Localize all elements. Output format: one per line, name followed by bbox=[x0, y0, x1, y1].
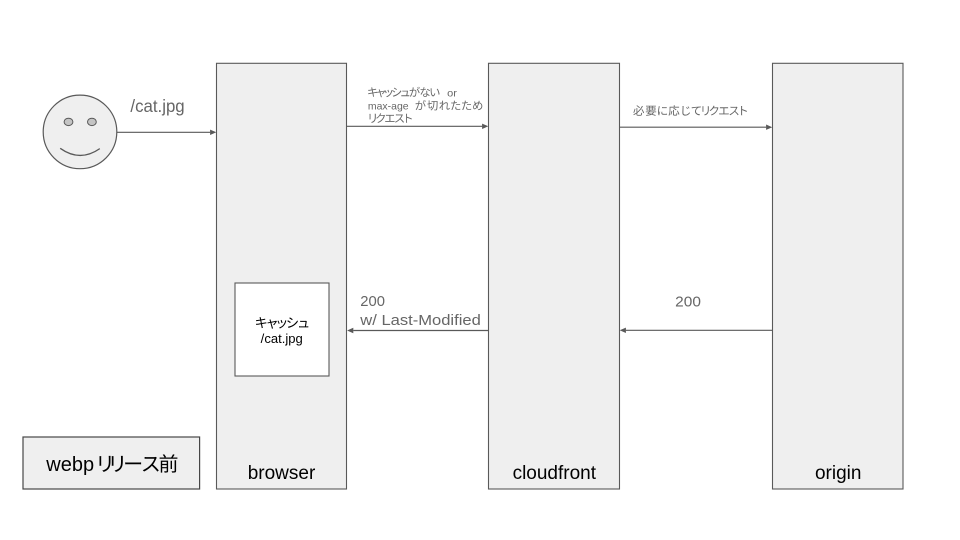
svg-text:200: 200 bbox=[675, 294, 701, 311]
svg-text:origin: origin bbox=[815, 463, 861, 484]
svg-text:webp: webp bbox=[45, 454, 94, 476]
svg-text:max-age: max-age bbox=[368, 101, 409, 113]
svg-text:w/ Last-Modified: w/ Last-Modified bbox=[359, 312, 481, 329]
svg-text:browser: browser bbox=[248, 463, 316, 484]
svg-text:or: or bbox=[447, 87, 457, 99]
svg-text:cloudfront: cloudfront bbox=[513, 463, 597, 484]
svg-text:/cat.jpg: /cat.jpg bbox=[261, 331, 303, 346]
svg-text:200: 200 bbox=[360, 293, 385, 310]
svg-text:/cat.jpg: /cat.jpg bbox=[130, 96, 184, 116]
